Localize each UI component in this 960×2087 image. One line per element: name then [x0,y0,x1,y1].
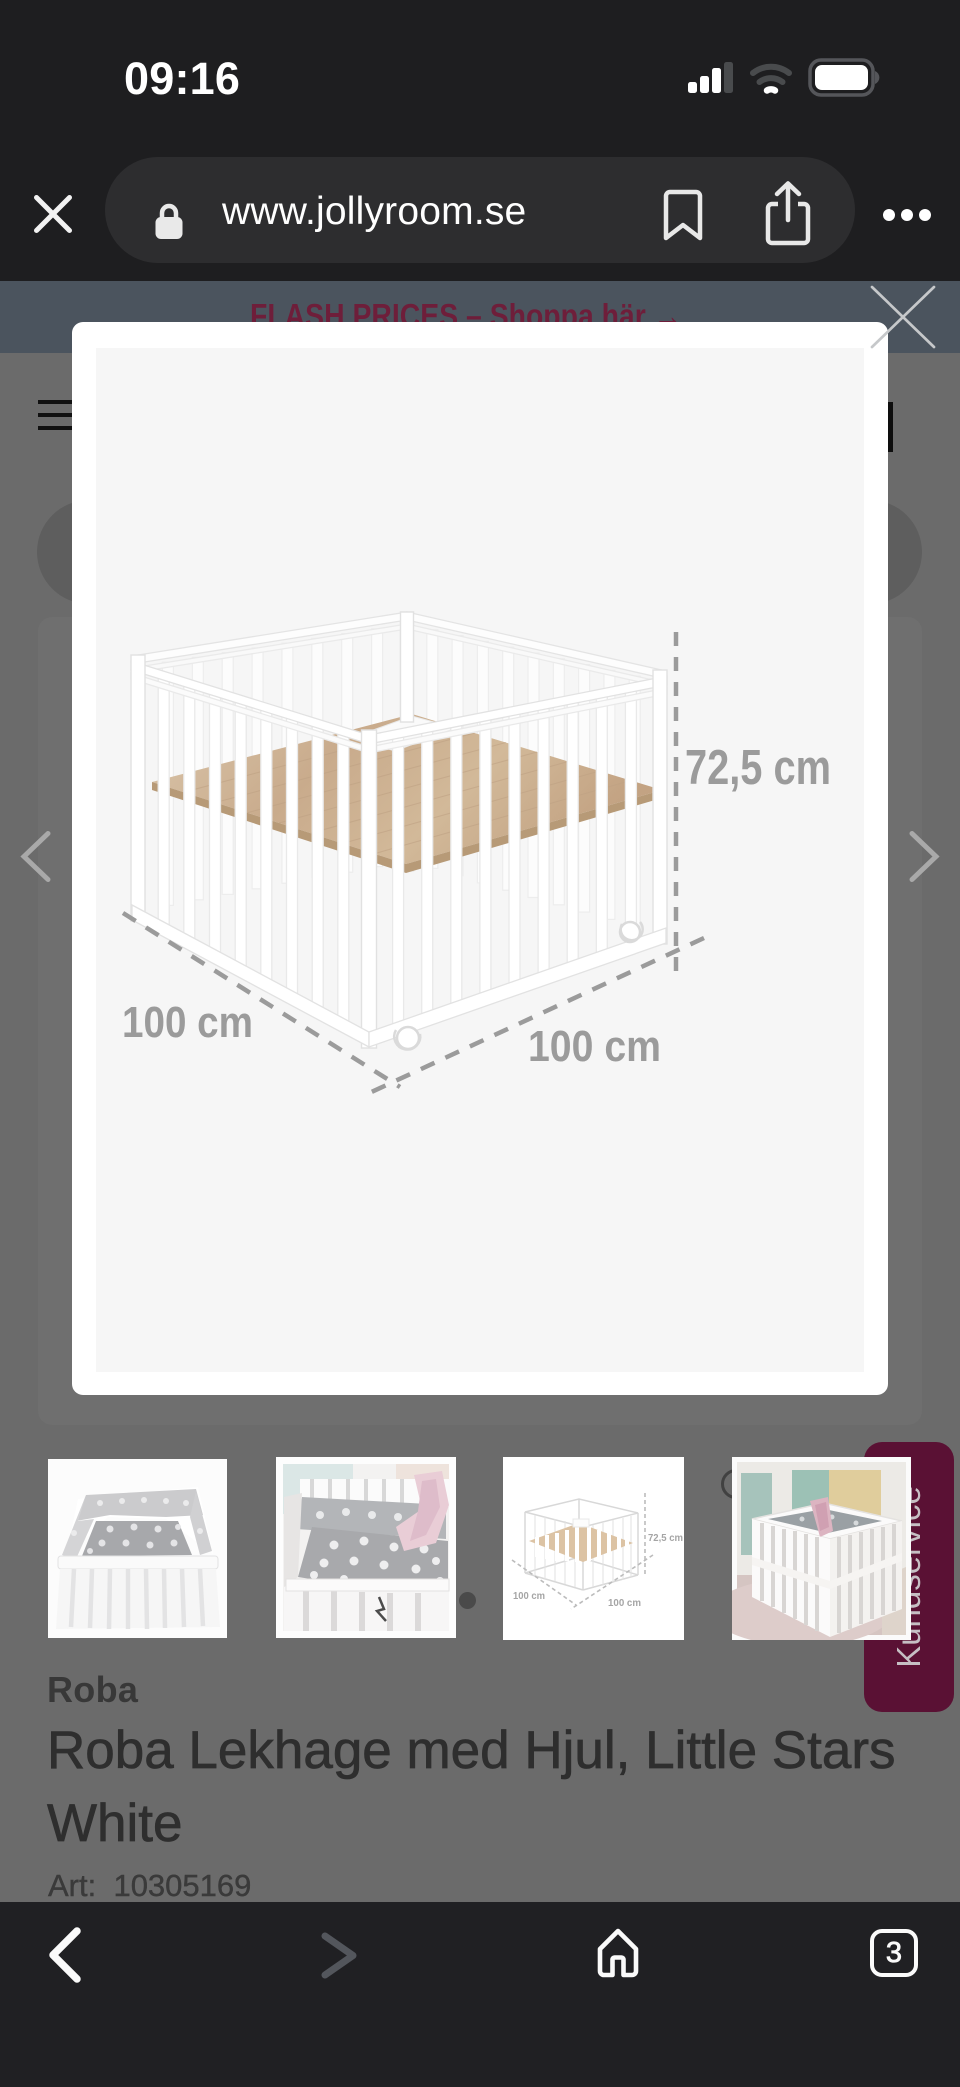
svg-text:100 cm: 100 cm [608,1598,641,1609]
svg-text:100 cm: 100 cm [122,998,253,1047]
svg-text:72,5 cm: 72,5 cm [648,1533,683,1544]
svg-text:72,5 cm: 72,5 cm [685,741,831,795]
svg-text:100 cm: 100 cm [513,1591,545,1602]
svg-text:100 cm: 100 cm [528,1022,661,1071]
